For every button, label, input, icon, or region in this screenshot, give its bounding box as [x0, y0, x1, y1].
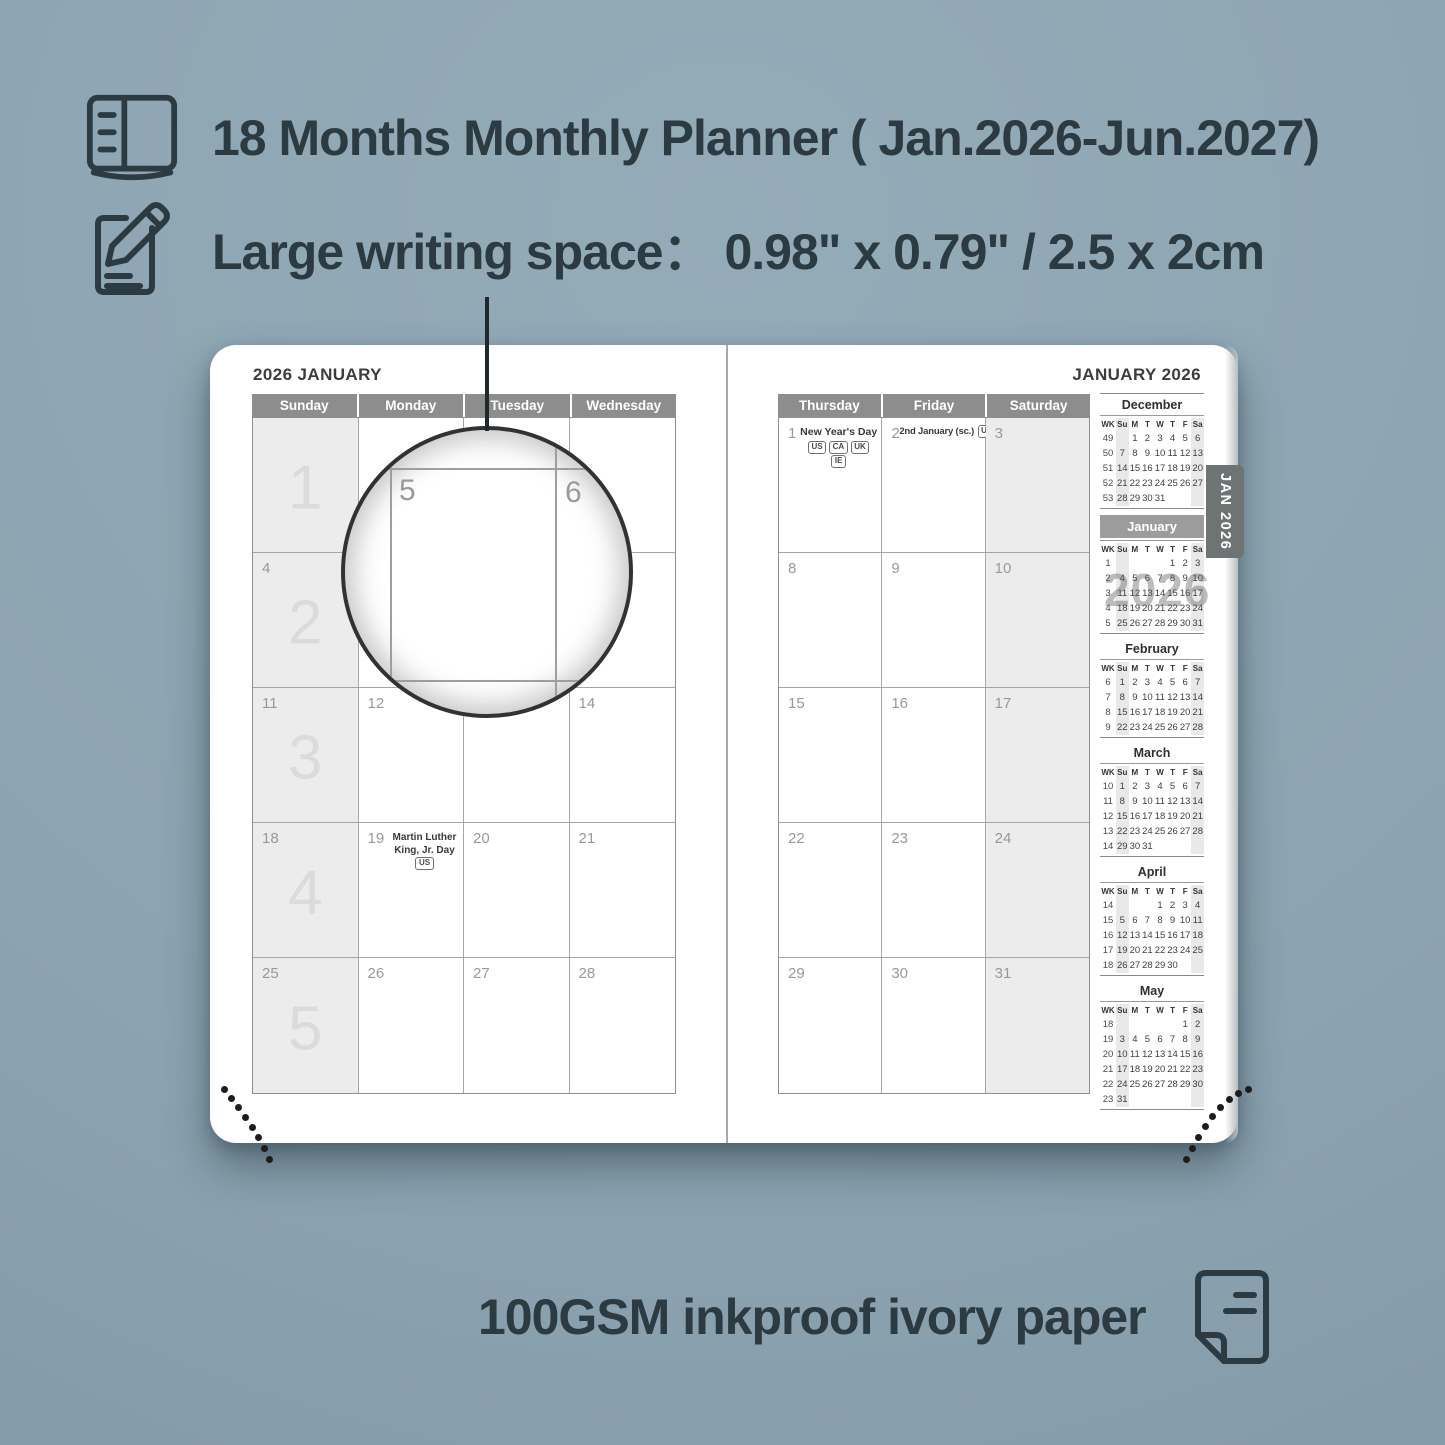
magnifier-circle: 5 6 — [341, 426, 633, 718]
mini-date — [1166, 839, 1179, 854]
mini-date: 23 — [1191, 1062, 1204, 1077]
mini-date: 30 — [1191, 1077, 1204, 1092]
mini-date: 24 — [1179, 943, 1192, 958]
date-number: 15 — [788, 695, 805, 712]
mini-week-number: 53 — [1100, 491, 1116, 506]
mini-week-number: 12 — [1100, 809, 1116, 824]
magnifier-gridline — [345, 468, 629, 470]
calendar-cell: 8 — [779, 553, 882, 688]
mini-date: 12 — [1179, 446, 1192, 461]
mini-date: 24 — [1141, 824, 1154, 839]
mini-header-cell: M — [1129, 662, 1142, 675]
mini-date: 6 — [1179, 675, 1192, 690]
mini-week-number: 50 — [1100, 446, 1116, 461]
magnified-date: 6 — [565, 476, 582, 510]
page-spine — [726, 345, 728, 1143]
mini-date: 26 — [1166, 720, 1179, 735]
mini-date: 17 — [1191, 586, 1204, 601]
date-number: 4 — [262, 560, 270, 577]
mini-date: 21 — [1191, 705, 1204, 720]
mini-date: 8 — [1116, 794, 1129, 809]
mini-date: 24 — [1141, 720, 1154, 735]
date-number: 18 — [262, 830, 279, 847]
country-badge: US — [415, 857, 433, 870]
mini-date: 3 — [1191, 556, 1204, 571]
mini-date: 3 — [1116, 1032, 1129, 1047]
feature-paper: 100GSM inkproof ivory paper — [478, 1268, 1274, 1366]
mini-date: 16 — [1166, 928, 1179, 943]
date-number: 31 — [995, 965, 1012, 982]
mini-date: 28 — [1141, 958, 1154, 973]
calendar-cell: 311 — [253, 688, 359, 823]
calendar-cell: 24 — [986, 823, 1089, 958]
date-number: 14 — [579, 695, 596, 712]
mini-date: 10 — [1179, 913, 1192, 928]
planner-spread: 2026 JANUARY SundayMondayTuesdayWednesda… — [210, 345, 1238, 1143]
mini-date: 10 — [1116, 1047, 1129, 1062]
mini-date — [1191, 839, 1204, 854]
mini-date — [1141, 1017, 1154, 1032]
mini-date: 18 — [1166, 461, 1179, 476]
mini-header-cell: T — [1141, 766, 1154, 779]
mini-header-cell: T — [1166, 885, 1179, 898]
mini-header-cell: T — [1141, 543, 1154, 556]
mini-date: 5 — [1179, 431, 1192, 446]
mini-date: 19 — [1179, 461, 1192, 476]
calendar-cell: 23 — [882, 823, 985, 958]
date-number: 10 — [995, 560, 1012, 577]
mini-date: 10 — [1141, 690, 1154, 705]
mini-date: 4 — [1154, 675, 1167, 690]
mini-date: 6 — [1154, 1032, 1167, 1047]
date-number: 22 — [788, 830, 805, 847]
mini-date — [1154, 1017, 1167, 1032]
mini-week-number: 51 — [1100, 461, 1116, 476]
calendar-cell: 418 — [253, 823, 359, 958]
mini-header-cell: Sa — [1191, 766, 1204, 779]
mini-date: 14 — [1191, 794, 1204, 809]
date-number: 21 — [579, 830, 596, 847]
mini-header-cell: T — [1141, 662, 1154, 675]
mini-calendar-grid: WKSuMTWTFSa10123456711891011121314121516… — [1100, 763, 1204, 856]
mini-date: 17 — [1116, 1062, 1129, 1077]
mini-week-number: 14 — [1100, 898, 1116, 913]
mini-header-cell: F — [1179, 662, 1192, 675]
mini-header-cell: WK — [1100, 662, 1116, 675]
mini-calendar: DecemberWKSuMTWTFSa491234565078910111213… — [1100, 396, 1204, 509]
mini-date: 7 — [1154, 571, 1167, 586]
mini-date: 16 — [1129, 705, 1142, 720]
stitch-dot — [1189, 1145, 1196, 1152]
feature-months: 18 Months Monthly Planner ( Jan.2026-Jun… — [84, 92, 1319, 184]
mini-date: 23 — [1166, 943, 1179, 958]
mini-date — [1166, 1092, 1179, 1107]
mini-date: 28 — [1191, 720, 1204, 735]
mini-calendar-grid: WKSuMTWTFSa14123415567891011161213141516… — [1100, 882, 1204, 975]
mini-date: 4 — [1191, 898, 1204, 913]
mini-date: 9 — [1129, 794, 1142, 809]
mini-date: 22 — [1129, 476, 1142, 491]
magnifier-gridline — [390, 430, 392, 714]
mini-header-cell: F — [1179, 543, 1192, 556]
calendar-cell: 29 — [779, 958, 882, 1093]
mini-date: 9 — [1166, 913, 1179, 928]
mini-date: 10 — [1191, 571, 1204, 586]
mini-header-cell: M — [1129, 766, 1142, 779]
mini-date: 24 — [1154, 476, 1167, 491]
mini-week-number: 15 — [1100, 913, 1116, 928]
mini-header-cell: Sa — [1191, 418, 1204, 431]
mini-calendar-title: May — [1100, 982, 1204, 1001]
mini-date: 21 — [1166, 1062, 1179, 1077]
mini-date: 10 — [1154, 446, 1167, 461]
mini-date: 17 — [1141, 705, 1154, 720]
stitch-dot — [266, 1156, 273, 1163]
mini-week-number: 18 — [1100, 958, 1116, 973]
mini-header-cell: Su — [1116, 1004, 1129, 1017]
mini-date: 16 — [1129, 809, 1142, 824]
day-header: Saturday — [987, 394, 1090, 417]
mini-date — [1154, 556, 1167, 571]
mini-date: 11 — [1129, 1047, 1142, 1062]
mini-date: 26 — [1166, 824, 1179, 839]
stitch-dot — [249, 1124, 256, 1131]
mini-date: 29 — [1179, 1077, 1192, 1092]
mini-week-number: 9 — [1100, 720, 1116, 735]
month-tab: JAN 2026 — [1206, 465, 1244, 558]
mini-date: 14 — [1154, 586, 1167, 601]
stitch-dot — [1235, 1090, 1242, 1097]
mini-date: 25 — [1116, 616, 1129, 631]
mini-date: 3 — [1141, 779, 1154, 794]
mini-header-cell: Sa — [1191, 885, 1204, 898]
stitch-dot — [261, 1145, 268, 1152]
mini-header-cell: Su — [1116, 543, 1129, 556]
mini-date: 20 — [1141, 601, 1154, 616]
date-number: 23 — [891, 830, 908, 847]
mini-date: 2 — [1129, 675, 1142, 690]
calendar-cell: 22nd January (sc.)UK — [882, 418, 985, 553]
mini-date — [1179, 1092, 1192, 1107]
magnifier-gridline — [345, 680, 629, 682]
mini-header-cell: F — [1179, 885, 1192, 898]
mini-date: 13 — [1141, 586, 1154, 601]
mini-date: 28 — [1116, 491, 1129, 506]
feature-paper-text: 100GSM inkproof ivory paper — [478, 1288, 1146, 1346]
date-number: 1 — [788, 425, 796, 442]
day-header: Wednesday — [572, 394, 677, 417]
mini-header-cell: F — [1179, 1004, 1192, 1017]
mini-date: 26 — [1116, 958, 1129, 973]
country-badge: US — [808, 441, 826, 454]
date-number: 12 — [368, 695, 385, 712]
mini-date: 18 — [1116, 601, 1129, 616]
mini-header-cell: M — [1129, 543, 1142, 556]
mini-date — [1141, 898, 1154, 913]
mini-week-number: 23 — [1100, 1092, 1116, 1107]
mini-date: 2 — [1191, 1017, 1204, 1032]
date-number: 8 — [788, 560, 796, 577]
left-page-title: 2026 JANUARY — [253, 365, 382, 385]
mini-date: 18 — [1154, 809, 1167, 824]
mini-header-cell: T — [1166, 543, 1179, 556]
date-number: 28 — [579, 965, 596, 982]
mini-date: 3 — [1179, 898, 1192, 913]
day-header: Friday — [883, 394, 986, 417]
mini-date: 16 — [1179, 586, 1192, 601]
mini-date: 20 — [1129, 943, 1142, 958]
calendar-cell: 20 — [464, 823, 570, 958]
mini-header-cell: WK — [1100, 418, 1116, 431]
mini-date: 1 — [1116, 675, 1129, 690]
date-number: 27 — [473, 965, 490, 982]
mini-header-cell: WK — [1100, 1004, 1116, 1017]
mini-date: 26 — [1179, 476, 1192, 491]
calendar-cell: 28 — [570, 958, 676, 1093]
mini-date: 30 — [1141, 491, 1154, 506]
mini-calendar-title: April — [1100, 863, 1204, 882]
mini-date: 30 — [1166, 958, 1179, 973]
date-number: 26 — [368, 965, 385, 982]
mini-date: 31 — [1116, 1092, 1129, 1107]
stitch-dot — [1245, 1086, 1252, 1093]
mini-date: 22 — [1154, 943, 1167, 958]
mini-header-cell: T — [1166, 662, 1179, 675]
mini-date: 17 — [1179, 928, 1192, 943]
mini-week-number: 21 — [1100, 1062, 1116, 1077]
mini-week-number: 2 — [1100, 571, 1116, 586]
calendar-cell: 15 — [779, 688, 882, 823]
stitch-dot — [221, 1086, 228, 1093]
mini-calendars: DecemberWKSuMTWTFSa491234565078910111213… — [1100, 393, 1204, 1116]
mini-date: 11 — [1154, 794, 1167, 809]
date-number: 11 — [262, 695, 278, 712]
feature-writing-space: Large writing space： 0.98" x 0.79" / 2.5… — [92, 198, 1264, 298]
calendar-cell: 525 — [253, 958, 359, 1093]
mini-header-cell: W — [1154, 543, 1167, 556]
mini-date: 30 — [1179, 616, 1192, 631]
mini-date: 15 — [1116, 809, 1129, 824]
mini-date — [1191, 958, 1204, 973]
calendar-cell: 26 — [359, 958, 465, 1093]
mini-date: 6 — [1129, 913, 1142, 928]
calendar-cell: 22 — [779, 823, 882, 958]
week-of-month-number: 2 — [253, 587, 358, 658]
date-number: 30 — [891, 965, 908, 982]
mini-date: 27 — [1154, 1077, 1167, 1092]
mini-date: 8 — [1116, 690, 1129, 705]
mini-week-number: 16 — [1100, 928, 1116, 943]
mini-date — [1141, 1092, 1154, 1107]
calendar-cell: 21 — [570, 823, 676, 958]
mini-date: 2 — [1166, 898, 1179, 913]
mini-date: 11 — [1116, 586, 1129, 601]
mini-date: 29 — [1116, 839, 1129, 854]
mini-date: 27 — [1129, 958, 1142, 973]
mini-date: 22 — [1116, 720, 1129, 735]
mini-date: 29 — [1129, 491, 1142, 506]
stitch-dot — [1195, 1134, 1202, 1141]
mini-date: 11 — [1191, 913, 1204, 928]
mini-date — [1129, 1017, 1142, 1032]
mini-date: 3 — [1141, 675, 1154, 690]
mini-header-cell: W — [1154, 885, 1167, 898]
mini-date: 21 — [1191, 809, 1204, 824]
feature-months-text: 18 Months Monthly Planner ( Jan.2026-Jun… — [212, 109, 1319, 167]
date-number: 19 — [368, 830, 385, 847]
mini-date: 22 — [1116, 824, 1129, 839]
day-header: Thursday — [778, 394, 881, 417]
calendar-cell: 17 — [986, 688, 1089, 823]
mini-date: 24 — [1116, 1077, 1129, 1092]
mini-date: 14 — [1166, 1047, 1179, 1062]
mini-header-cell: W — [1154, 418, 1167, 431]
stitch-dot — [1209, 1113, 1216, 1120]
paper-sheet-icon — [1188, 1269, 1274, 1365]
open-planner-icon — [84, 92, 180, 184]
calendar-cell: 1 — [253, 418, 359, 553]
mini-date: 7 — [1141, 913, 1154, 928]
mini-date: 8 — [1179, 1032, 1192, 1047]
country-badge: UK — [851, 441, 870, 454]
mini-header-cell: W — [1154, 662, 1167, 675]
mini-calendar: AprilWKSuMTWTFSa141234155678910111612131… — [1100, 863, 1204, 976]
stitch-dot — [1226, 1096, 1233, 1103]
mini-date: 1 — [1179, 1017, 1192, 1032]
date-number: 9 — [891, 560, 899, 577]
mini-date: 3 — [1154, 431, 1167, 446]
stitch-dot — [255, 1134, 262, 1141]
mini-date: 28 — [1166, 1077, 1179, 1092]
mini-date: 5 — [1129, 571, 1142, 586]
mini-date: 12 — [1116, 928, 1129, 943]
mini-date: 23 — [1129, 720, 1142, 735]
mini-date: 13 — [1191, 446, 1204, 461]
mini-date — [1154, 1092, 1167, 1107]
mini-header-cell: Su — [1116, 662, 1129, 675]
mini-header-cell: Su — [1116, 766, 1129, 779]
mini-header-cell: WK — [1100, 885, 1116, 898]
right-page-title: JANUARY 2026 — [1072, 365, 1201, 385]
mini-date: 14 — [1116, 461, 1129, 476]
mini-date — [1129, 898, 1142, 913]
right-day-header-row: ThursdayFridaySaturday — [778, 394, 1090, 417]
mini-date: 31 — [1154, 491, 1167, 506]
mini-date: 11 — [1166, 446, 1179, 461]
mini-date: 27 — [1141, 616, 1154, 631]
mini-calendar: MayWKSuMTWTFSa18121934567892010111213141… — [1100, 982, 1204, 1110]
mini-date: 5 — [1141, 1032, 1154, 1047]
mini-date: 25 — [1166, 476, 1179, 491]
mini-date — [1154, 839, 1167, 854]
right-page-grid: 1New Year's DayUSCAUKIE22nd January (sc.… — [778, 417, 1090, 1094]
mini-week-number: 18 — [1100, 1017, 1116, 1032]
mini-week-number: 49 — [1100, 431, 1116, 446]
mini-date: 22 — [1166, 601, 1179, 616]
mini-date: 25 — [1154, 824, 1167, 839]
mini-date: 9 — [1129, 690, 1142, 705]
mini-calendar-grid: WKSuMTWTFSa18121934567892010111213141516… — [1100, 1001, 1204, 1109]
mini-date: 13 — [1129, 928, 1142, 943]
mini-week-number: 6 — [1100, 675, 1116, 690]
mini-date: 20 — [1191, 461, 1204, 476]
date-number: 29 — [788, 965, 805, 982]
mini-date: 20 — [1154, 1062, 1167, 1077]
mini-week-number: 11 — [1100, 794, 1116, 809]
mini-header-cell: M — [1129, 418, 1142, 431]
mini-date: 7 — [1191, 779, 1204, 794]
mini-date: 20 — [1179, 705, 1192, 720]
mini-date: 19 — [1166, 809, 1179, 824]
mini-date: 28 — [1191, 824, 1204, 839]
mini-date: 16 — [1141, 461, 1154, 476]
date-number: 25 — [262, 965, 279, 982]
mini-date — [1116, 1017, 1129, 1032]
stitch-dot — [228, 1095, 235, 1102]
date-number: 20 — [473, 830, 490, 847]
mini-date: 8 — [1129, 446, 1142, 461]
mini-date — [1166, 491, 1179, 506]
mini-date: 10 — [1141, 794, 1154, 809]
mini-date: 21 — [1116, 476, 1129, 491]
mini-header-cell: T — [1166, 1004, 1179, 1017]
mini-date — [1179, 839, 1192, 854]
mini-week-number: 1 — [1100, 556, 1116, 571]
mini-date — [1179, 958, 1192, 973]
mini-date: 23 — [1129, 824, 1142, 839]
mini-calendar-grid: WKSuMTWTFSa61234567789101112131481516171… — [1100, 659, 1204, 737]
mini-week-number: 5 — [1100, 616, 1116, 631]
day-header: Tuesday — [465, 394, 570, 417]
mini-date: 13 — [1179, 690, 1192, 705]
mini-date: 20 — [1179, 809, 1192, 824]
mini-date: 26 — [1129, 616, 1142, 631]
week-of-month-number: 1 — [253, 452, 358, 523]
mini-calendar-title: December — [1100, 396, 1204, 415]
mini-date: 29 — [1154, 958, 1167, 973]
magnified-date: 5 — [399, 474, 416, 508]
mini-date: 9 — [1141, 446, 1154, 461]
mini-date: 31 — [1141, 839, 1154, 854]
week-of-month-number: 5 — [253, 993, 358, 1064]
mini-header-cell: T — [1141, 418, 1154, 431]
mini-date: 6 — [1179, 779, 1192, 794]
calendar-cell: 30 — [882, 958, 985, 1093]
date-number: 16 — [891, 695, 908, 712]
mini-date: 12 — [1166, 794, 1179, 809]
mini-date: 1 — [1129, 431, 1142, 446]
mini-header-cell: T — [1141, 885, 1154, 898]
mini-calendar: FebruaryWKSuMTWTFSa612345677891011121314… — [1100, 640, 1204, 738]
left-day-header-row: SundayMondayTuesdayWednesday — [252, 394, 676, 417]
mini-date: 28 — [1154, 616, 1167, 631]
mini-date: 12 — [1141, 1047, 1154, 1062]
canvas: 18 Months Monthly Planner ( Jan.2026-Jun… — [0, 0, 1445, 1445]
mini-date — [1129, 1092, 1142, 1107]
mini-header-cell: WK — [1100, 543, 1116, 556]
mini-date: 13 — [1179, 794, 1192, 809]
stitch-dot — [1217, 1104, 1224, 1111]
calendar-cell: 10 — [986, 553, 1089, 688]
mini-date: 19 — [1116, 943, 1129, 958]
mini-date: 4 — [1116, 571, 1129, 586]
mini-header-cell: W — [1154, 766, 1167, 779]
mini-date: 19 — [1129, 601, 1142, 616]
mini-date: 5 — [1166, 675, 1179, 690]
country-badge: IE — [831, 455, 846, 468]
mini-date: 30 — [1129, 839, 1142, 854]
stitch-dot — [235, 1104, 242, 1111]
